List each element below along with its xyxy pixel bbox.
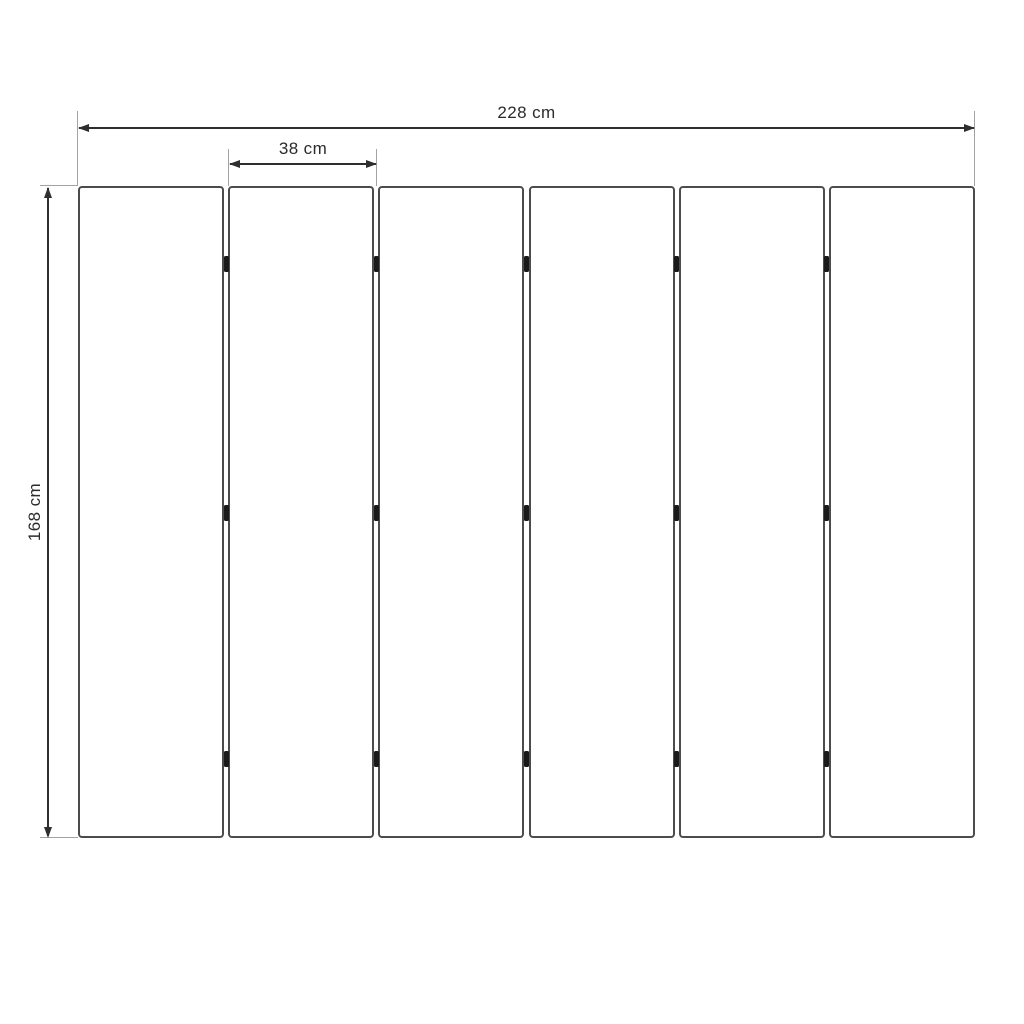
hinge-junction4-row2 xyxy=(674,505,679,521)
height-dimension-line xyxy=(47,188,49,836)
arrowhead-left xyxy=(78,124,89,132)
height-label: 168 cm xyxy=(24,467,46,557)
hinge-junction5-row3 xyxy=(824,751,829,767)
dimension-diagram: 228 cm 38 cm 168 cm xyxy=(0,0,1024,1024)
hinge-junction3-row2 xyxy=(524,505,529,521)
panel-1 xyxy=(78,186,224,838)
hinge-junction5-row2 xyxy=(824,505,829,521)
arrowhead-left xyxy=(229,160,240,168)
extension-line-height-top xyxy=(40,185,78,186)
panel-4 xyxy=(529,186,675,838)
hinge-junction4-row1 xyxy=(674,256,679,272)
hinge-junction1-row2 xyxy=(224,505,229,521)
hinge-junction4-row3 xyxy=(674,751,679,767)
arrowhead-down xyxy=(44,827,52,838)
panel-3 xyxy=(378,186,524,838)
hinge-junction2-row1 xyxy=(374,256,379,272)
arrowhead-right xyxy=(964,124,975,132)
hinge-junction5-row1 xyxy=(824,256,829,272)
total-width-dimension-line xyxy=(79,127,974,129)
panel-2 xyxy=(228,186,374,838)
panel-width-dimension-line xyxy=(230,163,376,165)
hinge-junction3-row3 xyxy=(524,751,529,767)
hinge-junction1-row3 xyxy=(224,751,229,767)
panel-5 xyxy=(679,186,825,838)
total-width-label: 228 cm xyxy=(78,102,975,124)
arrowhead-up xyxy=(44,187,52,198)
panel-6 xyxy=(829,186,975,838)
hinge-junction3-row1 xyxy=(524,256,529,272)
hinge-junction2-row2 xyxy=(374,505,379,521)
panel-width-label: 38 cm xyxy=(229,138,377,160)
arrowhead-right xyxy=(366,160,377,168)
hinge-junction2-row3 xyxy=(374,751,379,767)
hinge-junction1-row1 xyxy=(224,256,229,272)
